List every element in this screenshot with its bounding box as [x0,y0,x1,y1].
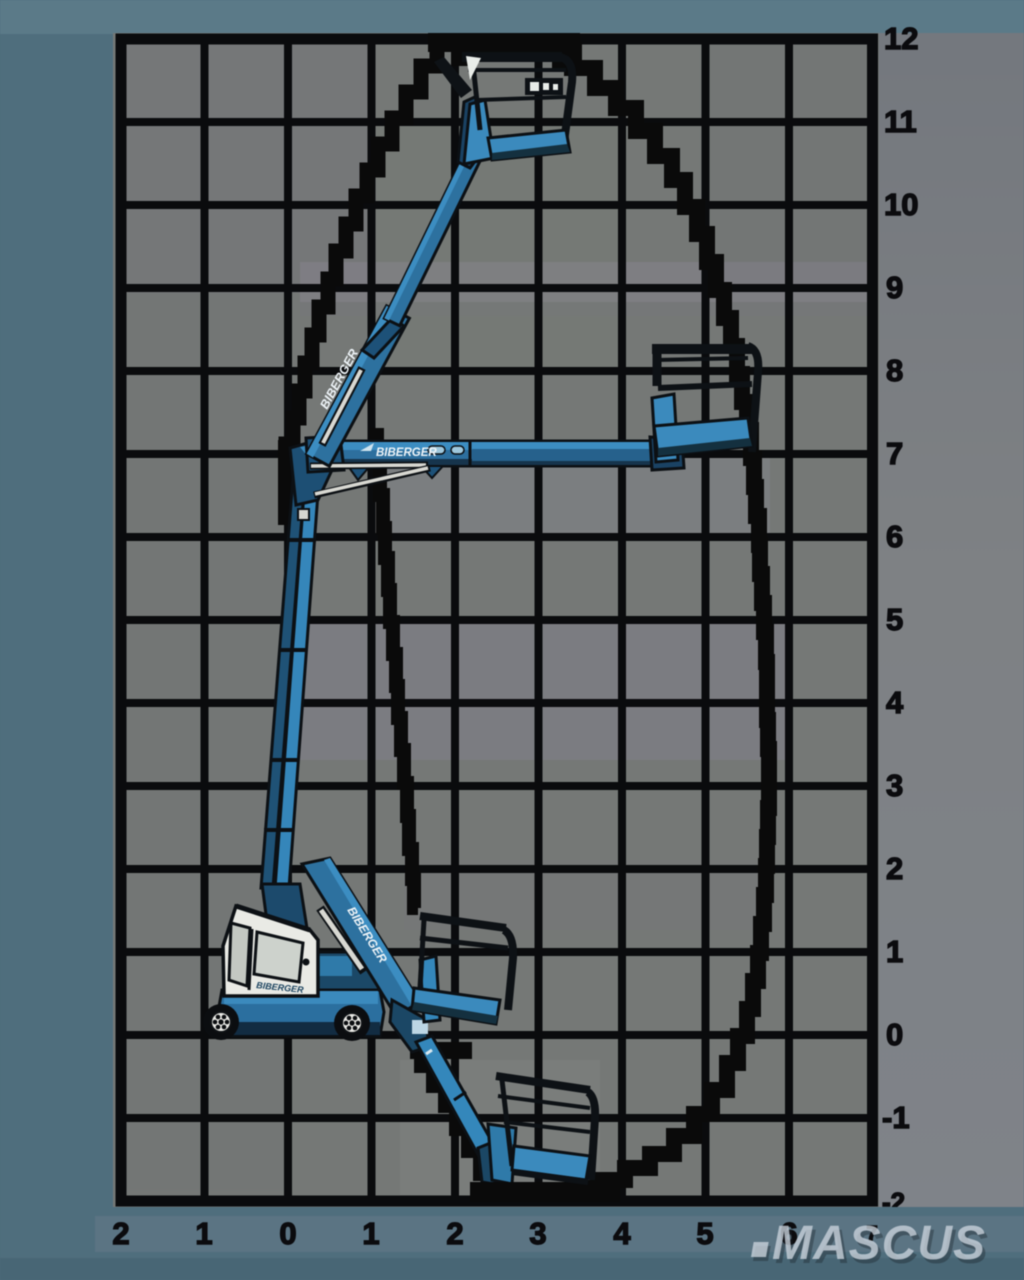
svg-text:MASCUS: MASCUS [772,1217,986,1270]
svg-text:2: 2 [112,1216,129,1251]
svg-text:5: 5 [886,602,903,637]
svg-text:7: 7 [886,436,903,471]
svg-text:2: 2 [446,1216,463,1251]
svg-text:1: 1 [195,1216,212,1251]
svg-text:9: 9 [886,270,903,305]
svg-text:1: 1 [886,934,903,969]
svg-text:2: 2 [886,851,903,886]
svg-text:BIBERGER: BIBERGER [376,447,437,459]
svg-text:0: 0 [279,1216,296,1251]
svg-text:12: 12 [884,21,918,56]
svg-text:6: 6 [886,519,903,554]
svg-text:11: 11 [884,104,917,139]
svg-text:1: 1 [362,1216,379,1251]
svg-text:10: 10 [884,187,918,222]
svg-text:4: 4 [613,1216,631,1251]
svg-text:5: 5 [696,1216,713,1251]
svg-text:3: 3 [529,1216,546,1251]
svg-text:8: 8 [886,353,903,388]
svg-text:0: 0 [886,1017,903,1052]
svg-text:4: 4 [886,685,904,720]
svg-text:3: 3 [886,768,903,803]
svg-text:-1: -1 [882,1100,910,1135]
